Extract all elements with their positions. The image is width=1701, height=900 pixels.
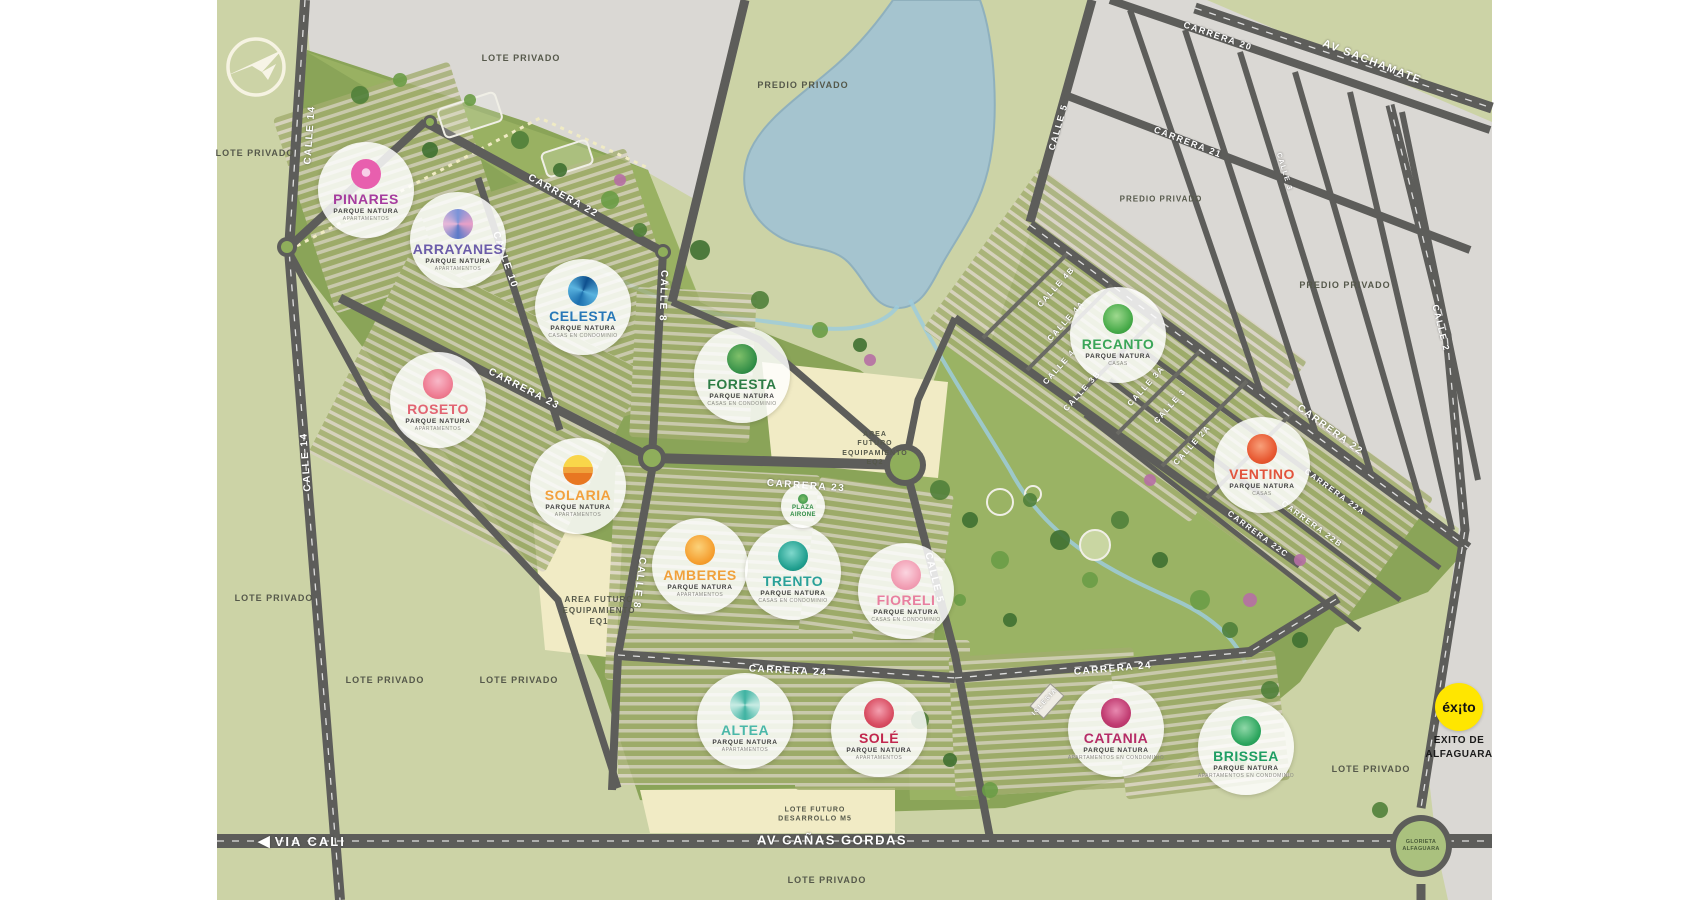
street-label-calle-8: CALLE 8 [657,270,670,323]
street-label-calle-14: CALLE 14 [298,432,313,492]
project-subtitle: PARQUE NATURA [667,584,732,591]
area-label-lote-futuro-desarrollo-m5: LOTE FUTURODESARROLLO M5 [778,806,852,825]
area-label-lote-privado: LOTE PRIVADO [346,674,425,686]
area-label-lote-privado: LOTE PRIVADO [480,674,559,686]
project-name: PINARES [333,192,399,206]
project-subtitle: PARQUE NATURA [1085,353,1150,360]
amberes-bloom-icon [685,535,715,565]
project-name: SOLARIA [545,488,612,502]
street-label-calle-2: CALLE 2 [1430,303,1451,352]
area-label-predio-privado: PREDIO PRIVADO [1120,195,1203,206]
project-badge-recanto[interactable]: RECANTOPARQUE NATURACASAS [1070,287,1166,383]
project-badge-celesta[interactable]: CELESTAPARQUE NATURACASAS EN CONDOMINIO [535,259,631,355]
recanto-leaf-icon [1103,304,1133,334]
street-label-carrera-22b: CARRERA 22B [1280,499,1344,549]
project-name: ROSETO [407,402,469,416]
street-label-carrera-20: CARRERA 20 [1182,20,1254,53]
altea-spiral-icon [730,690,760,720]
project-subtitle: PARQUE NATURA [550,325,615,332]
project-type: CASAS EN CONDOMINIO [707,401,776,407]
area-label-lote-privado: LOTE PRIVADO [235,592,314,604]
street-label-carrera-24: CARRERA 24 [1073,660,1152,678]
brissea-tree-icon [1231,716,1261,746]
street-label-carrera-22: CARRERA 22 [526,172,600,220]
celesta-wave-icon [568,276,598,306]
foresta-leaf-icon [727,344,757,374]
plaza-airone-badge[interactable]: PLAZAAIRONE [781,484,825,528]
project-badge-fioreli[interactable]: FIORELIPARQUE NATURACASAS EN CONDOMINIO [858,543,954,639]
fioreli-flower-icon [891,560,921,590]
street-label-calle-3: CALLE 3 [1152,387,1188,426]
project-type: CASAS [1108,361,1127,367]
ventino-bloom-icon [1247,434,1277,464]
area-label-predio-privado: PREDIO PRIVADO [757,79,848,91]
area-label-a-rea-futuro-equipamiento-eq2: ÁREAFUTUROEQUIPAMIENTOEQ2 [842,430,907,468]
project-type: APARTAMENTOS [856,755,902,761]
area-label-lote-privado: LOTE PRIVADO [1332,763,1411,775]
area-label-area-futuro-equipamiento-eq1: AREA FUTUROEQUIPAMIENTOEQ1 [562,595,635,627]
project-type: APARTAMENTOS [555,512,601,518]
street-label-av-can-as-gordas: AV CAÑAS GORDAS [757,833,907,848]
street-label-calle-3: CALLE 3 [1275,152,1293,192]
project-badge-brissea[interactable]: BRISSEAPARQUE NATURAAPARTAMENTOS EN COND… [1198,699,1294,795]
project-type: CASAS EN CONDOMINIO [871,617,940,623]
project-subtitle: PARQUE NATURA [1229,483,1294,490]
project-type: APARTAMENTOS [677,592,723,598]
project-name: CATANIA [1084,731,1148,745]
pinares-bloom-icon [351,159,381,189]
plaza-name-line1: PLAZA [792,505,814,512]
project-type: APARTAMENTOS [435,266,481,272]
street-label-carrera-22a: CARRERA 22A [1303,467,1367,517]
plaza-name-line2: AIRONE [790,512,816,519]
project-name: CELESTA [549,309,617,323]
via-cali-label: ◀VIA CALI [258,832,346,850]
masterplan-map: CALLE 14CALLE 14CARRERA 22CALLE 10CALLE … [0,0,1701,900]
project-name: FORESTA [707,377,776,391]
area-label-lote-privado: LOTE PRIVADO [788,874,867,886]
project-type: CASAS [1252,491,1271,497]
project-subtitle: PARQUE NATURA [1083,747,1148,754]
area-label-predio-privado: PREDIO PRIVADO [1299,279,1390,291]
project-name: VENTINO [1229,467,1295,481]
project-type: CASAS EN CONDOMINIO [548,333,617,339]
project-subtitle: PARQUE NATURA [846,747,911,754]
exito-caption: EXITO DEALFAGUARA [1425,734,1492,762]
project-name: ARRAYANES [413,242,504,256]
project-badge-arrayanes[interactable]: ARRAYANESPARQUE NATURAAPARTAMENTOS [410,192,506,288]
project-subtitle: PARQUE NATURA [425,258,490,265]
catania-rose-icon [1101,698,1131,728]
west-arrow-icon: ◀ [258,832,270,850]
project-badge-trento[interactable]: TRENTOPARQUE NATURACASAS EN CONDOMINIO [745,524,841,620]
project-badge-sole[interactable]: SOLÉPARQUE NATURAAPARTAMENTOS [831,681,927,777]
glorieta-alfaguara-label: GLORIETAALFAGUARA [1402,839,1439,853]
project-name: SOLÉ [859,731,899,745]
street-label-av-sachamate: AV SACHAMATE [1321,38,1423,87]
project-badge-foresta[interactable]: FORESTAPARQUE NATURACASAS EN CONDOMINIO [694,327,790,423]
project-type: APARTAMENTOS EN CONDOMINIO [1198,773,1294,779]
project-badge-solaria[interactable]: SOLARIAPARQUE NATURAAPARTAMENTOS [530,438,626,534]
project-type: CASAS EN CONDOMINIO [758,598,827,604]
street-label-calle-4b: CALLE 4B [1036,265,1077,309]
project-badge-altea[interactable]: ALTEAPARQUE NATURAAPARTAMENTOS [697,673,793,769]
street-label-carrera-21: CARRERA 21 [1153,124,1224,159]
project-badge-pinares[interactable]: PINARESPARQUE NATURAAPARTAMENTOS [318,142,414,238]
plaza-tree-icon [798,494,808,504]
street-label-iglesia: IGLESIA [1031,687,1059,717]
project-name: RECANTO [1082,337,1154,351]
area-label-lote-privado: LOTE PRIVADO [482,52,561,64]
project-badge-ventino[interactable]: VENTINOPARQUE NATURACASAS [1214,417,1310,513]
project-badge-amberes[interactable]: AMBERESPARQUE NATURAAPARTAMENTOS [652,518,748,614]
street-label-carrera-22c: CARRERA 22C [1226,509,1290,559]
project-name: BRISSEA [1213,749,1279,763]
trento-cone-icon [778,541,808,571]
street-label-calle-5: CALLE 5 [1047,103,1070,152]
project-badge-catania[interactable]: CATANIAPARQUE NATURAAPARTAMENTOS EN COND… [1068,681,1164,777]
via-cali-text: VIA CALI [275,834,346,849]
project-type: APARTAMENTOS [343,216,389,222]
project-name: TRENTO [763,574,823,588]
project-name: AMBERES [663,568,737,582]
area-label-lote-privado: LOTE PRIVADO [216,147,295,159]
project-subtitle: PARQUE NATURA [1213,765,1278,772]
project-badge-roseto[interactable]: ROSETOPARQUE NATURAAPARTAMENTOS [390,352,486,448]
roseto-flower-icon [423,369,453,399]
project-subtitle: PARQUE NATURA [712,739,777,746]
project-subtitle: PARQUE NATURA [709,393,774,400]
project-subtitle: PARQUE NATURA [760,590,825,597]
exito-logo[interactable]: éx¡to [1435,683,1483,731]
project-type: APARTAMENTOS [722,747,768,753]
project-name: FIORELI [877,593,936,607]
solaria-sun-icon [563,455,593,485]
project-subtitle: PARQUE NATURA [405,418,470,425]
project-subtitle: PARQUE NATURA [545,504,610,511]
sole-flower-icon [864,698,894,728]
street-label-calle-14: CALLE 14 [302,105,317,165]
arrayanes-bloom-icon [443,209,473,239]
project-name: ALTEA [721,723,769,737]
map-labels-layer: CALLE 14CALLE 14CARRERA 22CALLE 10CALLE … [0,0,1701,900]
street-label-calle-2a: CALLE 2A [1172,423,1213,467]
project-subtitle: PARQUE NATURA [333,208,398,215]
project-subtitle: PARQUE NATURA [873,609,938,616]
project-type: APARTAMENTOS EN CONDOMINIO [1068,755,1164,761]
project-type: APARTAMENTOS [415,426,461,432]
street-label-calle-4: CALLE 4 [1041,348,1077,387]
street-label-carrera-23: CARRERA 23 [487,366,562,411]
